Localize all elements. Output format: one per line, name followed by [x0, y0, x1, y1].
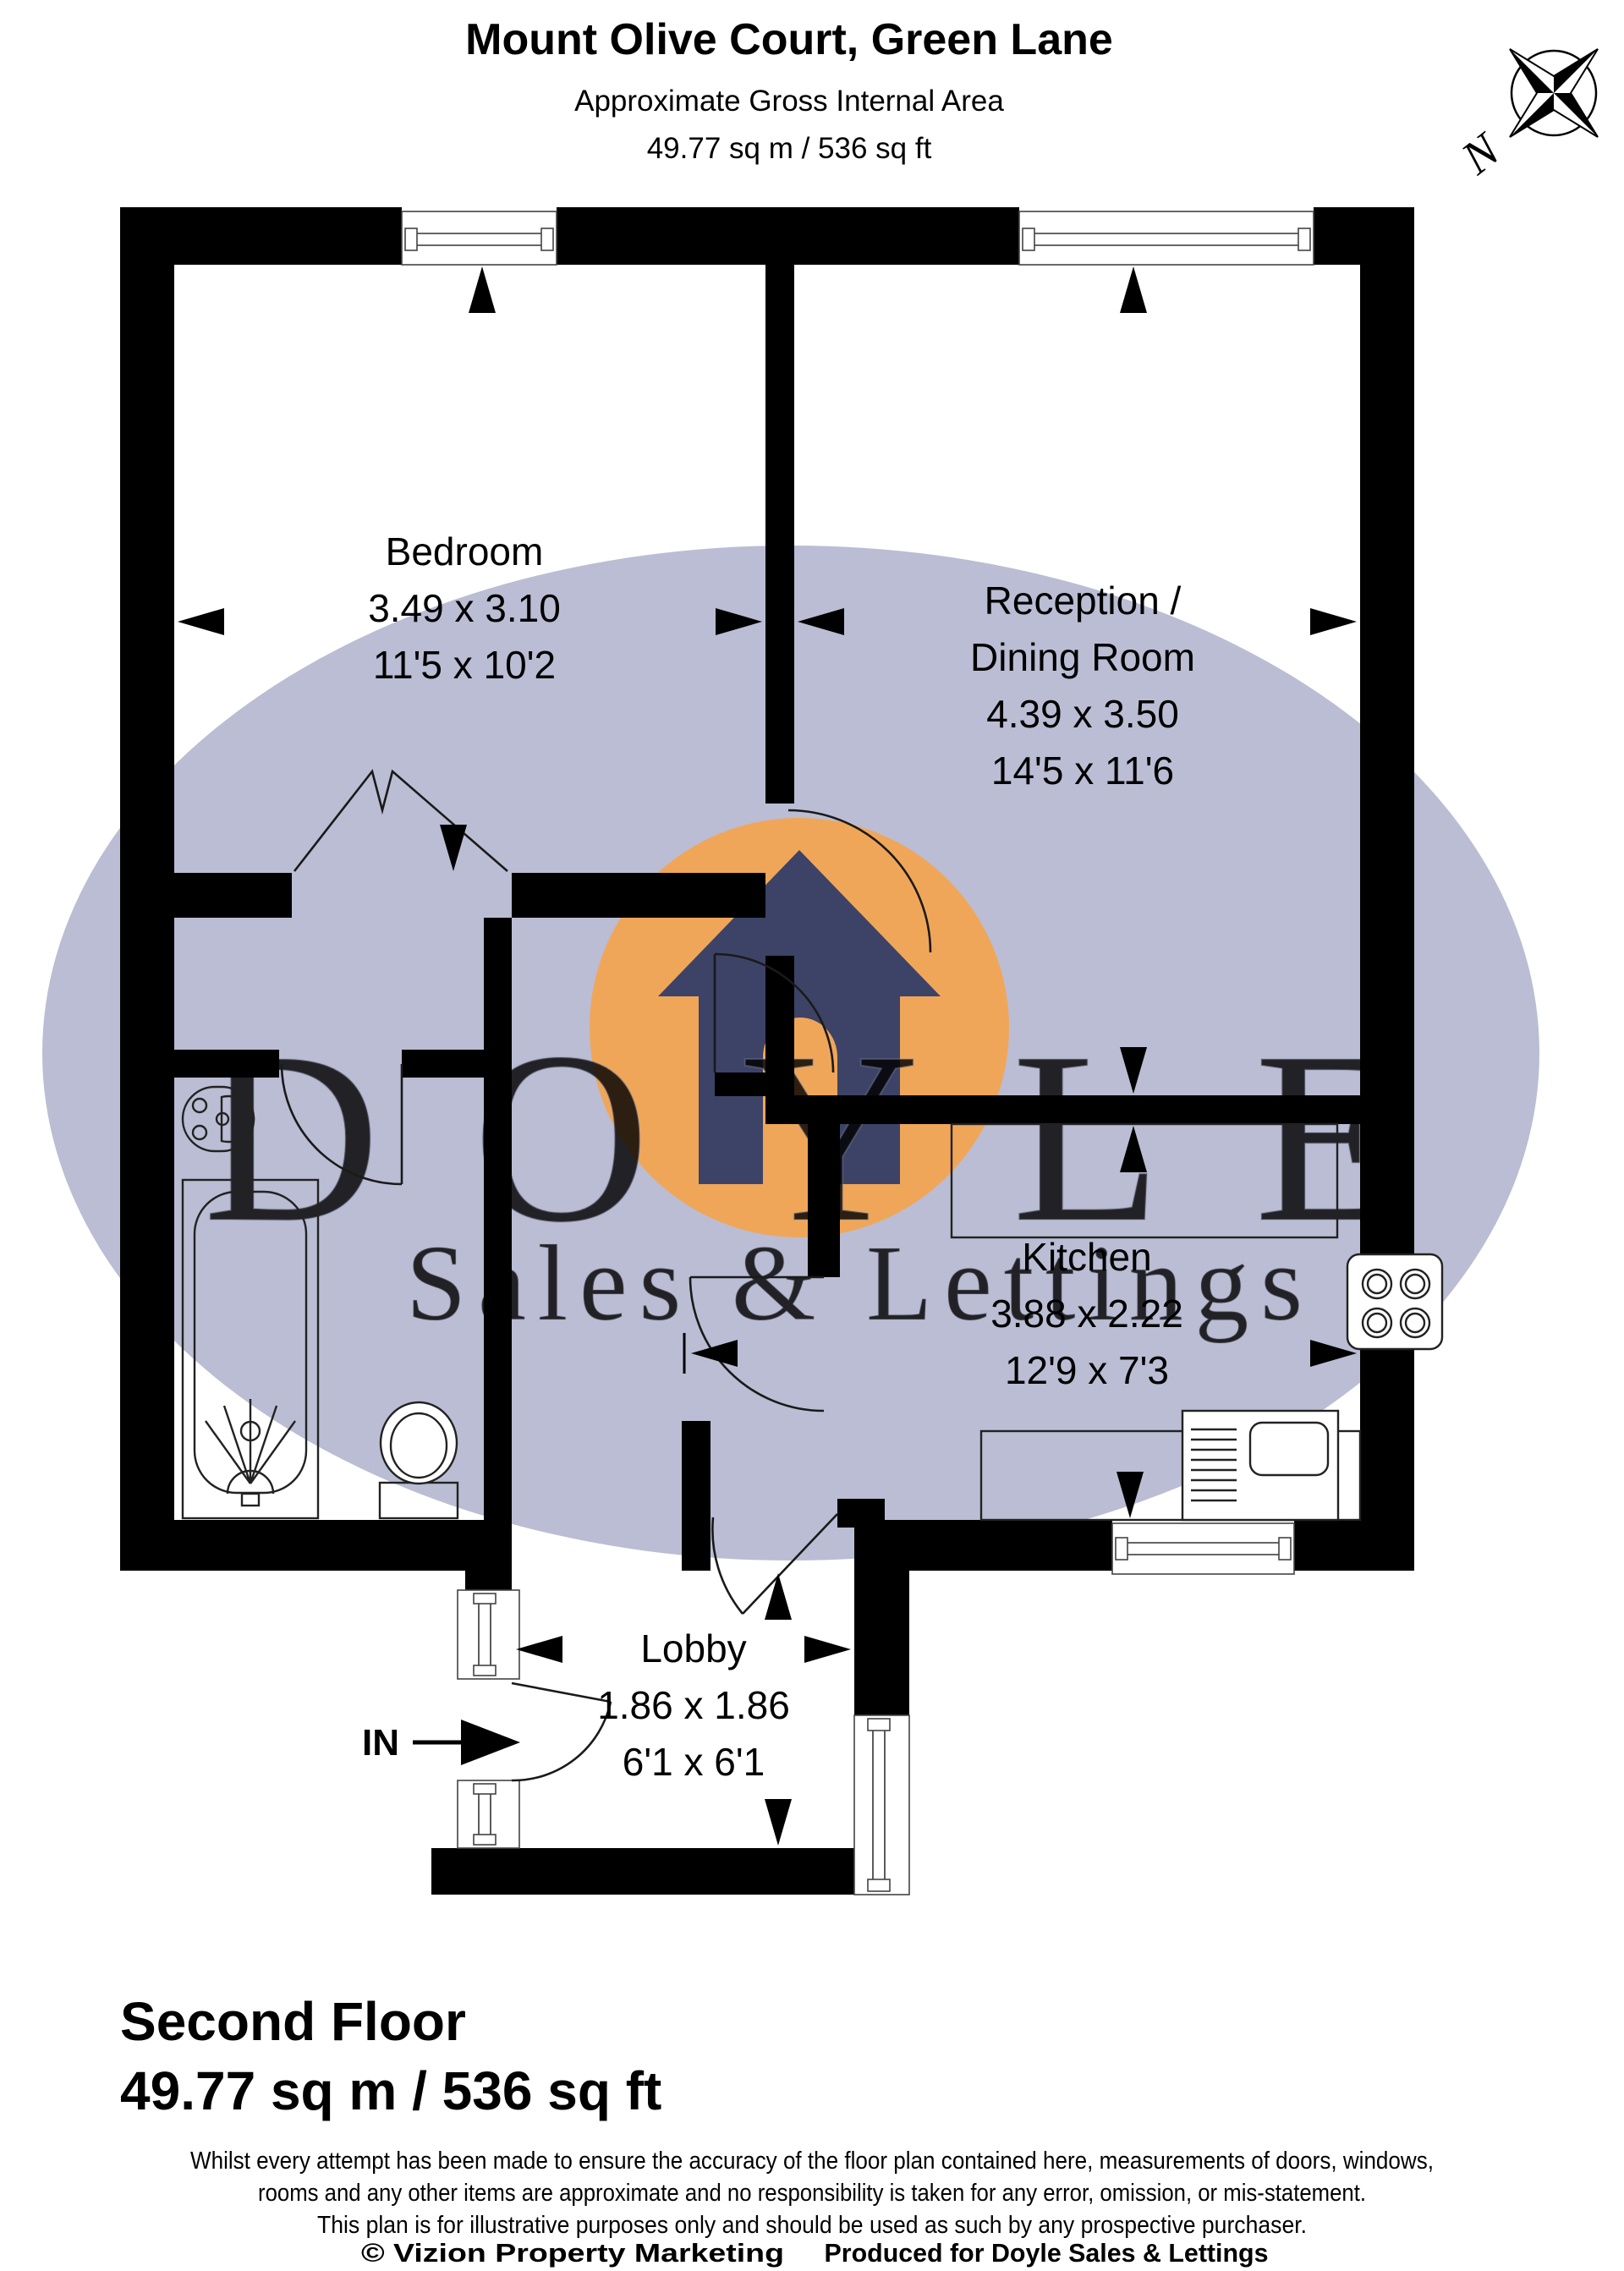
reception-arrow-up	[1120, 266, 1147, 313]
lobby-name: Lobby	[640, 1626, 746, 1670]
lobby-label: Lobby 1.86 x 1.86 6'1 x 6'1	[597, 1626, 790, 1784]
subtitle-area-value: 49.77 sq m / 536 sq ft	[647, 132, 932, 165]
reception-name: Reception /	[985, 579, 1182, 623]
disclaimer: Whilst every attempt has been made to en…	[190, 2148, 1434, 2268]
bedroom-label: Bedroom 3.49 x 3.10 11'5 x 10'2	[368, 529, 561, 687]
wall-bottom-right	[1294, 1520, 1414, 1571]
disclaimer-line-2: rooms and any other items are approximat…	[258, 2180, 1366, 2207]
wall-hall-bar	[715, 1072, 765, 1096]
wall-bathroom-top-left	[174, 1050, 279, 1078]
wall-lobby-door-jamb	[837, 1499, 885, 1528]
lobby-dim-metric: 1.86 x 1.86	[597, 1683, 790, 1727]
floorplan-canvas: DOYLE Sales & Lettings	[0, 0, 1624, 2271]
kitchen-sink-icon	[1182, 1411, 1338, 1520]
disclaimer-line-1: Whilst every attempt has been made to en…	[190, 2148, 1434, 2175]
wall-bathroom-right	[484, 1078, 512, 1520]
entrance-marker: IN	[362, 1720, 520, 1765]
bedroom-dim-imperial: 11'5 x 10'2	[373, 643, 556, 687]
wall-bathroom-top-right	[402, 1050, 512, 1078]
reception-arrow-right	[1310, 608, 1357, 635]
page-title: Mount Olive Court, Green Lane	[465, 15, 1113, 64]
lobby-dim-imperial: 6'1 x 6'1	[623, 1740, 765, 1784]
wall-bottom-left	[120, 1520, 512, 1571]
wall-left	[120, 265, 174, 1520]
wall-lobby-bottom	[431, 1848, 854, 1895]
entrance-arrow-icon	[461, 1720, 520, 1765]
wall-top-left	[120, 207, 402, 265]
credit-agent: Produced for Doyle Sales & Lettings	[825, 2238, 1269, 2268]
subtitle-area-label: Approximate Gross Internal Area	[574, 85, 1004, 118]
kitchen-dim-imperial: 12'9 x 7'3	[1005, 1348, 1169, 1392]
kitchen-dim-metric: 3.88 x 2.22	[990, 1292, 1183, 1336]
entry-door-arc	[512, 1702, 611, 1780]
lobby-arrow-up	[765, 1573, 792, 1620]
wall-divider-upper	[765, 265, 794, 804]
header: Mount Olive Court, Green Lane Approximat…	[465, 15, 1113, 165]
wall-lobby-left-top	[465, 1571, 512, 1590]
footer: Second Floor 49.77 sq m / 536 sq ft	[120, 1991, 661, 2121]
compass-north-label: N	[1451, 123, 1511, 185]
floor-name: Second Floor	[120, 1991, 466, 2052]
wall-lobby-right	[854, 1528, 909, 1715]
disclaimer-line-3: This plan is for illustrative purposes o…	[317, 2212, 1307, 2239]
reception-dim-imperial: 14'5 x 11'6	[991, 749, 1174, 793]
lobby-arrow-left	[516, 1636, 562, 1663]
lobby-window-right	[854, 1715, 909, 1895]
wall-top-right	[1314, 207, 1414, 265]
kitchen-name: Kitchen	[1022, 1235, 1151, 1279]
wall-kitchen-stub	[808, 1124, 840, 1277]
wall-kitchen-top	[794, 1095, 1360, 1124]
wall-bottom-middle	[885, 1520, 1112, 1571]
entry-door-leaf	[512, 1683, 611, 1702]
floor-area: 49.77 sq m / 536 sq ft	[120, 2060, 661, 2121]
reception-window	[1019, 211, 1314, 265]
lobby-arrow-down	[765, 1799, 792, 1846]
bedroom-dim-metric: 3.49 x 3.10	[368, 586, 561, 630]
bedroom-arrow-left	[178, 608, 224, 635]
hob-icon	[1347, 1254, 1442, 1349]
bedroom-name: Bedroom	[386, 529, 544, 573]
lobby-window-upper	[458, 1590, 519, 1679]
entrance-label: IN	[362, 1722, 399, 1764]
floorplan-page: DOYLE Sales & Lettings	[0, 0, 1624, 2271]
reception-dim-metric: 4.39 x 3.50	[986, 692, 1179, 736]
compass-rose-icon: N	[1451, 49, 1598, 185]
credit-marketing: © Vizion Property Marketing	[361, 2238, 784, 2268]
reception-name2: Dining Room	[970, 635, 1195, 679]
wall-bedroom-bottom-right	[512, 873, 765, 918]
kitchen-window	[1112, 1523, 1294, 1574]
lobby-window-lower	[458, 1780, 519, 1848]
lobby-arrow-right	[804, 1636, 851, 1663]
wall-hall-right	[682, 1421, 710, 1571]
wall-top-middle	[557, 207, 1019, 265]
bedroom-arrow-up	[469, 266, 496, 313]
wall-bedroom-bottom-left	[174, 873, 292, 918]
wall-bathroom-right-upper	[484, 918, 512, 1050]
bedroom-window	[402, 211, 557, 265]
